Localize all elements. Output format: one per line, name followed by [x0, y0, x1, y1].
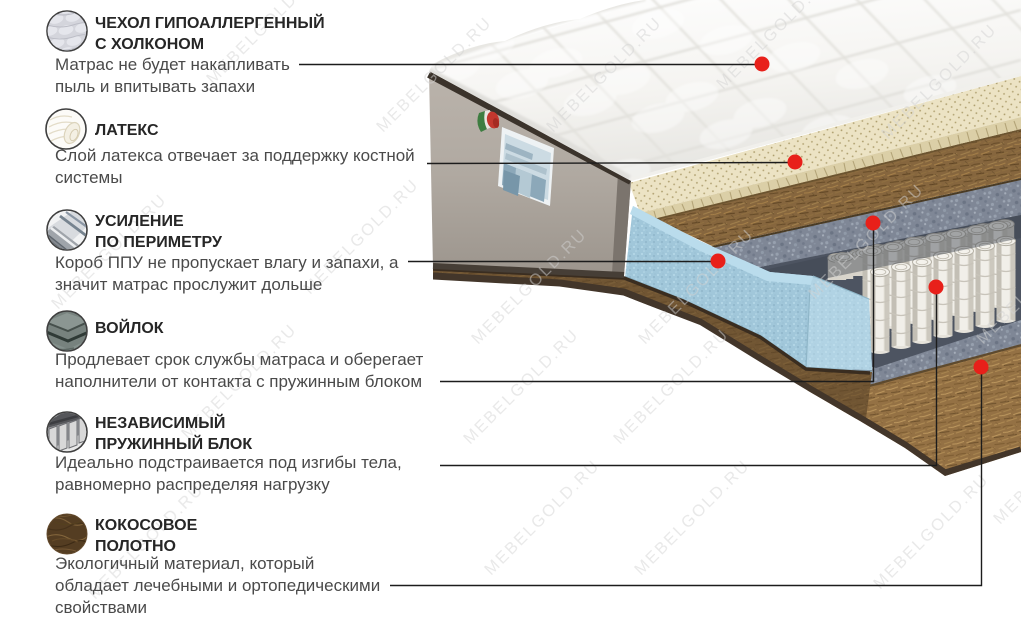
svg-text:MEBELGOLD.RU: MEBELGOLD.RU [481, 456, 603, 578]
svg-text:MEBELGOLD.RU: MEBELGOLD.RU [870, 470, 992, 592]
svg-text:MEBELGOLD.RU: MEBELGOLD.RU [631, 456, 753, 578]
svg-text:MEBELGOLD.RU: MEBELGOLD.RU [610, 325, 732, 447]
